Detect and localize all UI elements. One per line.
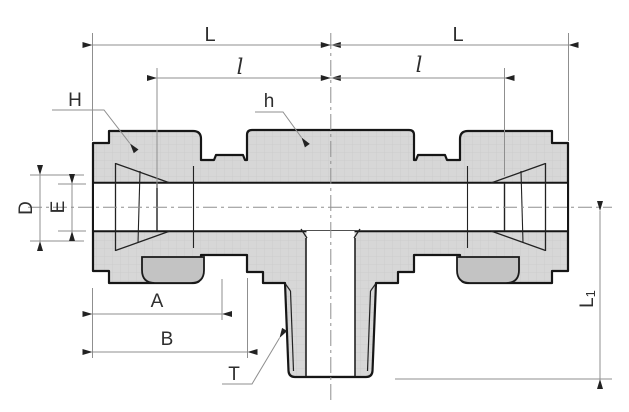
dim-label-E: E — [48, 201, 69, 214]
callout-label-T: T — [228, 364, 240, 385]
dim-label-L1-sub: 1 — [583, 290, 598, 297]
drawing-canvas: L L l l H h D E A B T L1 — [0, 0, 629, 412]
dim-label-l-left: l — [237, 55, 244, 79]
left-nut-skirt — [142, 257, 204, 283]
dim-label-l-right: l — [416, 53, 423, 77]
dim-label-L-left: L — [204, 24, 215, 46]
dim-label-A: A — [151, 291, 164, 312]
dim-label-L1: L1 — [577, 290, 598, 308]
dim-label-B: B — [161, 329, 174, 350]
callout-label-H: H — [68, 90, 82, 111]
fitting-drawing: L L l l H h D E A B T L1 — [0, 0, 629, 412]
dim-label-L1-main: L — [577, 297, 598, 308]
dim-label-D: D — [16, 201, 37, 215]
dim-label-L-right: L — [452, 24, 463, 46]
callout-label-h: h — [264, 91, 275, 112]
right-nut-skirt — [457, 257, 519, 283]
